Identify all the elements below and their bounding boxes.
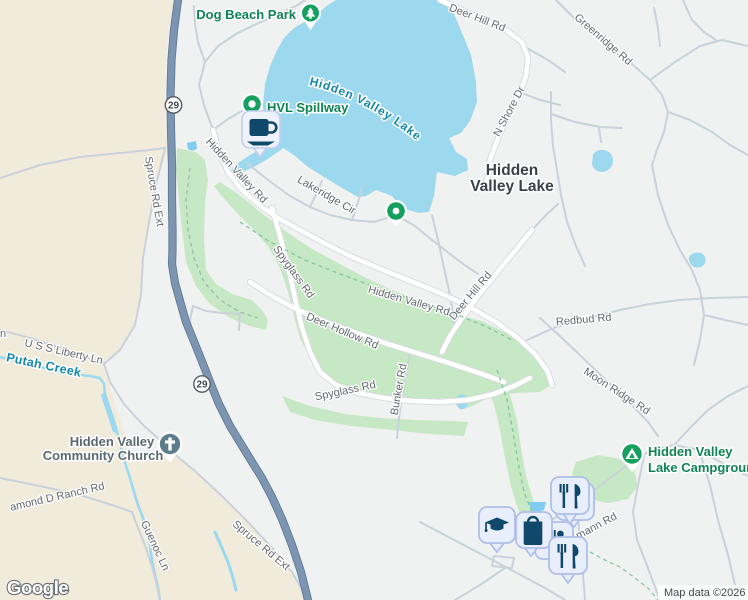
svg-text:Hidden Valley: Hidden Valley [70,434,155,449]
svg-text:Community Church: Community Church [43,448,164,463]
svg-text:Map data ©2026: Map data ©2026 [664,587,746,599]
svg-text:Hidden Valley: Hidden Valley [648,444,733,459]
svg-text:Dog Beach Park: Dog Beach Park [196,7,296,22]
svg-text:Valley Lake: Valley Lake [470,178,554,195]
svg-text:29: 29 [168,101,180,112]
svg-text:Google: Google [7,577,68,598]
svg-text:HVL Spillway: HVL Spillway [267,100,349,115]
svg-text:n: n [0,328,6,340]
svg-text:29: 29 [196,380,208,391]
svg-text:Hidden: Hidden [486,162,539,179]
svg-text:Lake Campground: Lake Campground [648,460,748,475]
